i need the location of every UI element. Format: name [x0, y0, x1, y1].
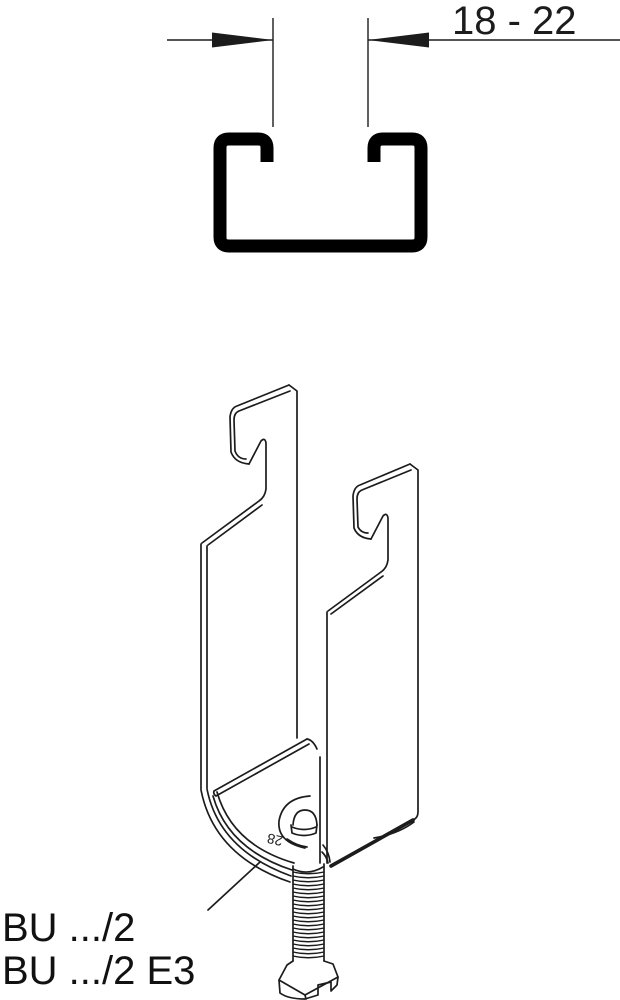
left-hook-outer-edge [230, 385, 289, 464]
hex-head-top-face [279, 961, 338, 995]
product-labels: BU .../2 BU .../2 E3 [2, 906, 195, 993]
dimension-arrow-right [368, 33, 429, 48]
leader-line [208, 862, 260, 910]
hex-head-lines [279, 961, 338, 999]
right-leg-lines [320, 464, 418, 866]
right-leg-right-edge [410, 464, 418, 820]
hex-head-face-divider [305, 995, 306, 999]
plate-back-edge [214, 739, 309, 796]
right-hook-mouth-edge [328, 514, 388, 611]
channel-profile-drawing [220, 139, 421, 246]
dimension-arrow-left [212, 33, 273, 48]
product-label-line1: BU .../2 [2, 906, 135, 950]
left-hook-inner-thickness [234, 391, 290, 459]
clamp-drawing: 28 [201, 385, 418, 999]
right-hook-inner-thickness [357, 470, 411, 533]
bolt-dome-top [293, 810, 317, 825]
left-leg-right-edge [289, 385, 297, 738]
right-hook-outer-edge [353, 464, 410, 539]
left-hook-mouth-edge [202, 439, 266, 543]
saddle-lip-over-shaft [293, 867, 323, 872]
bolt-dome-collar [292, 827, 316, 830]
screw-bolt-lines [279, 864, 338, 999]
hex-head-bottom-outline [279, 977, 338, 999]
product-label-line2: BU .../2 E3 [2, 949, 195, 993]
technical-drawing: 18 - 22 [0, 0, 620, 1000]
right-shoulder-thickness [331, 576, 383, 614]
right-leg-bottom-edge [331, 820, 413, 866]
left-leg-lines [201, 385, 297, 789]
channel-profile-path [220, 139, 421, 246]
left-shoulder-thickness [208, 505, 262, 545]
screw-threads [293, 872, 324, 958]
dimension-label: 18 - 22 [452, 0, 577, 43]
dimension-annotation: 18 - 22 [167, 0, 620, 127]
drawing-page: 18 - 22 [0, 0, 620, 1000]
pressure-plate-lines: 28 [214, 739, 317, 849]
